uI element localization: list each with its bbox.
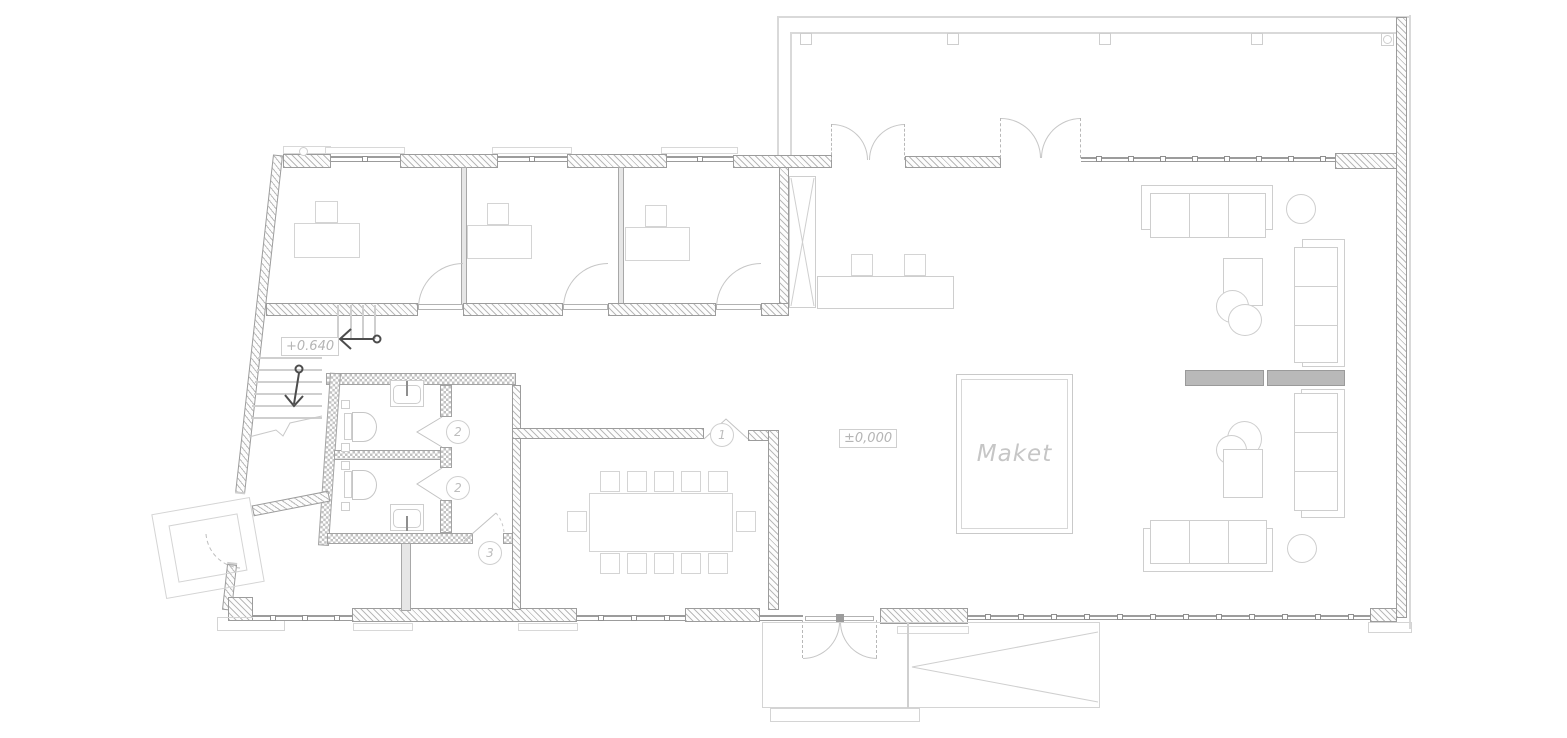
- room-number-wc-bottom: 2: [446, 476, 470, 500]
- room-number-storage: 3: [478, 541, 502, 565]
- wc-folding-door: [417, 468, 442, 500]
- floor-plan-canvas: Maket: [0, 0, 1567, 738]
- storage-door-leaf: [464, 513, 496, 541]
- maket-label: Maket: [977, 441, 1052, 467]
- storage-door-arc: [496, 513, 504, 535]
- stair-break-line: [249, 416, 322, 437]
- stair-arrow-start-circle: [374, 336, 381, 343]
- stair-arrow-line: [294, 373, 299, 404]
- side-door-arc: [206, 534, 240, 568]
- room-number-conference: 1: [710, 423, 734, 447]
- wc-folding-door: [417, 417, 442, 447]
- drawing-details-layer: [0, 0, 1567, 738]
- stair-arrow-start-circle: [296, 366, 303, 373]
- room-number-wc-top: 2: [446, 420, 470, 444]
- entrance-ramp: [912, 632, 1098, 702]
- level-label-upper: +0.640: [281, 337, 339, 356]
- level-label-ground: ±0,000: [839, 429, 897, 448]
- wardrobe-x-symbol: [791, 178, 814, 306]
